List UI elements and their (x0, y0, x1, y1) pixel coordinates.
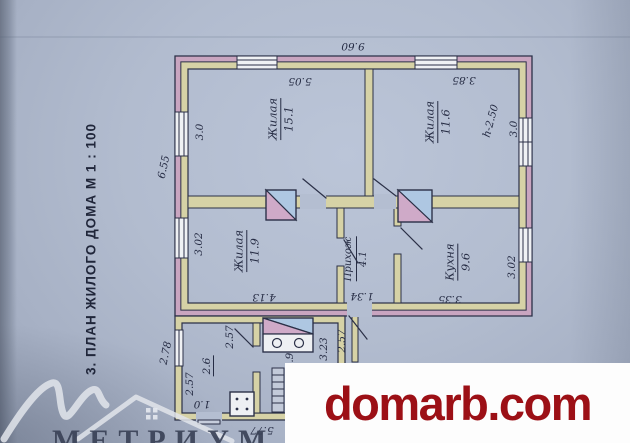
scanned-floorplan-page: 3. ПЛАН ЖИЛОГО ДОМА М 1 : 100 (0, 0, 630, 443)
dimension-label: 3.0 (508, 121, 520, 138)
stove-icon-kitchen (398, 190, 432, 222)
window-top-left (237, 56, 277, 69)
dimension-label: 3.02 (506, 255, 518, 278)
logo-house-window (146, 408, 158, 420)
dimension-label: 3.23 (318, 337, 330, 360)
room-label-living1: Жилая15.1 (266, 98, 295, 140)
window-top-right (415, 56, 457, 69)
watermark-text: domarb.com (324, 376, 591, 431)
window-left-upper (175, 112, 188, 156)
stove-icon-living (266, 190, 296, 220)
metrium-logo-text: МЕТРИУМ (52, 424, 275, 443)
cooking-range-icon (263, 318, 313, 352)
window-annex-left (175, 330, 183, 366)
window-left-lower (175, 218, 188, 258)
dimension-label: 3.35 (438, 293, 461, 305)
dimension-label: 3.02 (193, 232, 205, 255)
room-label-hallway: Прихож4.1 (343, 237, 369, 282)
dimension-label: 2.57 (224, 325, 236, 348)
dimension-label: 9.60 (341, 40, 364, 52)
dimension-label: 3.85 (452, 74, 475, 86)
window-right-lower (519, 228, 532, 262)
room-label-living2: Жилая11.6 (423, 101, 452, 143)
dimension-label: 1.34 (350, 290, 373, 302)
dimension-label: 4.13 (252, 291, 275, 303)
dimension-label: 5.05 (288, 75, 311, 87)
dimension-label: 3.0 (194, 124, 206, 141)
watermark-box: domarb.com (285, 363, 630, 443)
dimension-label: 2.57 (336, 329, 348, 352)
room-label-living3: Жилая11.9 (232, 230, 261, 272)
room-label-kitchen: Кухня9.6 (443, 243, 472, 280)
window-right-upper (519, 118, 532, 166)
